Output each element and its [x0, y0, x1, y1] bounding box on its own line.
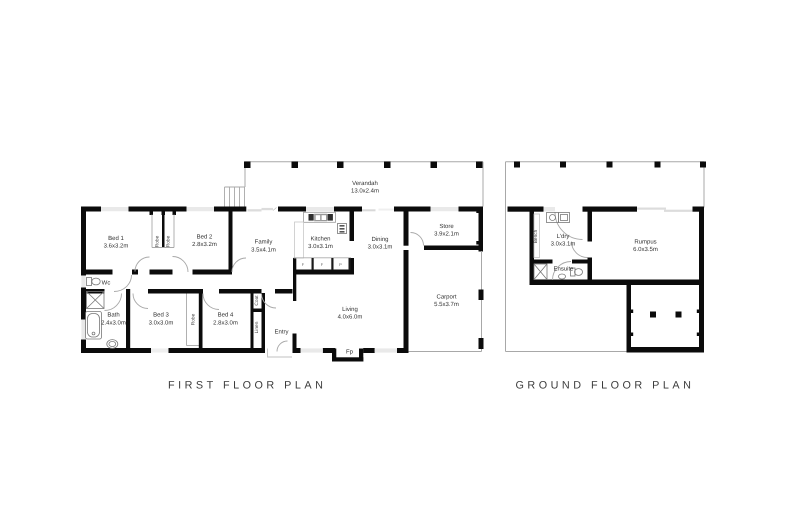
svg-text:L'dry: L'dry: [557, 233, 570, 240]
svg-text:FIRST FLOOR PLAN: FIRST FLOOR PLAN: [168, 380, 326, 392]
svg-text:2.4x3.0m: 2.4x3.0m: [101, 320, 126, 327]
svg-text:3.0x3.1m: 3.0x3.1m: [551, 241, 576, 248]
svg-text:3.6x3.2m: 3.6x3.2m: [104, 243, 129, 250]
svg-text:Wc: Wc: [102, 280, 111, 287]
svg-text:Bath: Bath: [107, 312, 119, 319]
svg-text:Kitchen: Kitchen: [310, 236, 330, 243]
svg-text:3.9x2.1m: 3.9x2.1m: [434, 231, 459, 238]
svg-text:Rumpus: Rumpus: [634, 239, 656, 246]
svg-text:Robe: Robe: [191, 313, 197, 325]
svg-text:Verandah: Verandah: [352, 180, 378, 187]
svg-text:2.8x3.2m: 2.8x3.2m: [192, 241, 217, 248]
svg-text:13.0x2.4m: 13.0x2.4m: [351, 188, 379, 195]
svg-text:Bed 4: Bed 4: [218, 312, 234, 319]
svg-text:Linen: Linen: [254, 321, 260, 333]
svg-text:4.0x6.0m: 4.0x6.0m: [338, 314, 363, 321]
svg-text:Entry: Entry: [274, 329, 288, 336]
svg-text:3.5x4.1m: 3.5x4.1m: [251, 247, 276, 254]
svg-text:Bed 3: Bed 3: [153, 312, 169, 319]
svg-text:Family: Family: [255, 239, 273, 246]
svg-text:Bed 1: Bed 1: [108, 235, 124, 242]
svg-text:Living: Living: [342, 306, 358, 313]
svg-text:Coat: Coat: [254, 295, 260, 306]
svg-text:5.5x3.7m: 5.5x3.7m: [434, 301, 459, 308]
svg-text:GROUND FLOOR PLAN: GROUND FLOOR PLAN: [516, 380, 695, 392]
svg-text:Store: Store: [439, 223, 454, 230]
svg-text:Bed 2: Bed 2: [197, 234, 213, 241]
svg-text:3.0x3.0m: 3.0x3.0m: [149, 320, 174, 327]
svg-text:Ensuite: Ensuite: [553, 266, 574, 273]
svg-text:Dining: Dining: [371, 236, 388, 243]
svg-text:2.8x3.0m: 2.8x3.0m: [213, 320, 238, 327]
svg-text:Bench: Bench: [533, 229, 539, 243]
svg-text:3.0x3.1m: 3.0x3.1m: [368, 244, 393, 251]
svg-text:3.0x3.1m: 3.0x3.1m: [308, 243, 333, 250]
svg-text:Carport: Carport: [436, 294, 456, 301]
svg-text:P: P: [339, 262, 342, 267]
svg-text:6.0x3.5m: 6.0x3.5m: [633, 246, 658, 253]
svg-text:Fp: Fp: [346, 349, 354, 356]
svg-text:Robe: Robe: [166, 235, 172, 247]
svg-text:Robe: Robe: [155, 235, 161, 247]
